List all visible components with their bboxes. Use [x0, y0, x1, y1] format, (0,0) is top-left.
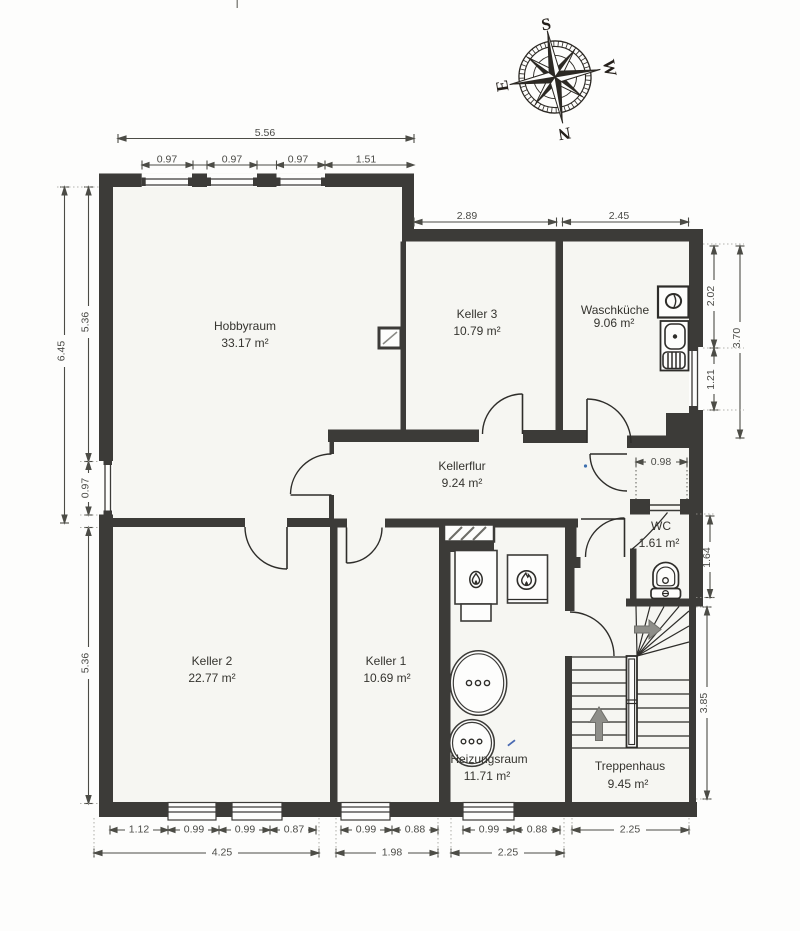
svg-text:0.99: 0.99 — [184, 824, 205, 836]
svg-text:2.25: 2.25 — [498, 847, 519, 859]
svg-text:9.24 m²: 9.24 m² — [442, 476, 483, 490]
svg-text:10.79 m²: 10.79 m² — [453, 324, 500, 338]
svg-text:11.71 m²: 11.71 m² — [464, 769, 510, 783]
svg-text:0.99: 0.99 — [479, 824, 500, 836]
svg-text:0.87: 0.87 — [284, 824, 305, 836]
svg-text:5.36: 5.36 — [80, 312, 92, 333]
svg-text:5.56: 5.56 — [255, 127, 276, 139]
svg-text:Keller 2: Keller 2 — [192, 654, 233, 668]
svg-text:0.99: 0.99 — [235, 824, 256, 836]
svg-text:Kellerflur: Kellerflur — [438, 459, 485, 473]
svg-text:Keller 3: Keller 3 — [457, 307, 498, 321]
svg-text:W: W — [599, 58, 621, 78]
svg-text:Keller 1: Keller 1 — [366, 654, 407, 668]
svg-text:0.97: 0.97 — [80, 478, 92, 499]
svg-text:3.85: 3.85 — [698, 693, 710, 714]
svg-text:1.21: 1.21 — [705, 369, 717, 390]
svg-text:10.69 m²: 10.69 m² — [363, 671, 410, 685]
svg-text:Hobbyraum: Hobbyraum — [214, 319, 276, 333]
svg-text:3.70: 3.70 — [731, 328, 743, 349]
svg-text:2.89: 2.89 — [457, 210, 478, 222]
svg-text:WC: WC — [651, 519, 671, 533]
svg-text:1.12: 1.12 — [129, 824, 150, 836]
svg-text:1.61 m²: 1.61 m² — [639, 536, 680, 550]
svg-text:Treppenhaus: Treppenhaus — [595, 759, 665, 773]
svg-text:4.25: 4.25 — [212, 847, 233, 859]
svg-text:Heizungsraum: Heizungsraum — [450, 752, 527, 766]
svg-text:2.25: 2.25 — [620, 824, 641, 836]
svg-text:2.02: 2.02 — [705, 286, 717, 307]
svg-text:0.98: 0.98 — [651, 456, 672, 468]
svg-text:33.17 m²: 33.17 m² — [221, 336, 268, 350]
svg-text:0.97: 0.97 — [157, 154, 178, 166]
svg-text:0.88: 0.88 — [527, 824, 548, 836]
svg-text:0.97: 0.97 — [222, 154, 243, 166]
svg-text:0.99: 0.99 — [356, 824, 377, 836]
svg-text:1.51: 1.51 — [356, 154, 377, 166]
svg-text:0.97: 0.97 — [288, 154, 309, 166]
svg-text:2.45: 2.45 — [609, 210, 630, 222]
svg-text:1.64: 1.64 — [701, 547, 713, 568]
svg-text:0.88: 0.88 — [405, 824, 426, 836]
svg-text:1.98: 1.98 — [382, 847, 403, 859]
svg-text:5.36: 5.36 — [80, 653, 92, 674]
svg-text:Waschküche: Waschküche — [581, 303, 650, 317]
svg-text:22.77 m²: 22.77 m² — [188, 671, 235, 685]
svg-text:9.06 m²: 9.06 m² — [594, 316, 635, 330]
svg-text:9.45 m²: 9.45 m² — [608, 777, 649, 791]
svg-text:6.45: 6.45 — [56, 341, 68, 362]
